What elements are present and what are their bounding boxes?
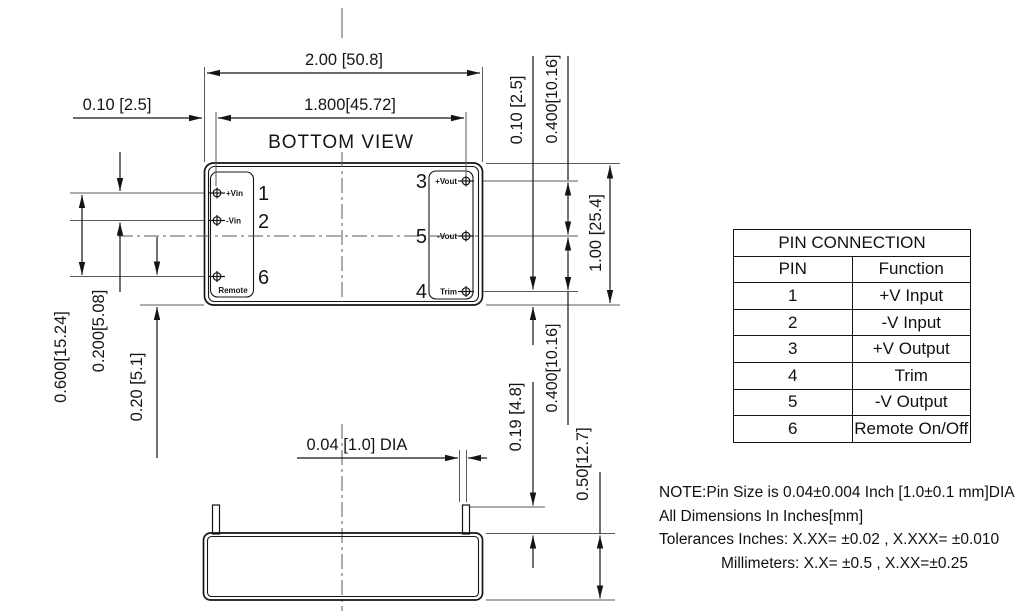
pin-cell: 4 <box>734 362 853 389</box>
pin-symbol-3 <box>458 176 474 187</box>
dim-pin-length: 0.19 [4.8] <box>507 383 525 452</box>
dim-body-width: 2.00 [50.8] <box>305 51 383 69</box>
table-row: 4 Trim <box>734 362 971 389</box>
note-line: Tolerances Inches: X.XX= ±0.02 , X.XXX= … <box>659 528 1027 552</box>
function-cell: Trim <box>852 362 971 389</box>
dim-output-pitch-lower: 0.400[10.16] <box>544 324 561 413</box>
table-title-row: PIN CONNECTION <box>734 230 971 257</box>
mechanical-drawing-page: +Vin -Vin Remote +Vout -Vout Trim 1 2 6 … <box>0 0 1028 612</box>
dim-case-height: 0.50[12.7] <box>574 427 592 500</box>
pin-label-vout-plus: +Vout <box>435 177 457 186</box>
table-header-row: PIN Function <box>734 256 971 283</box>
table-row: 6 Remote On/Off <box>734 416 971 443</box>
pin-symbol-1 <box>209 188 225 199</box>
pin-symbol-2 <box>209 215 225 226</box>
function-cell: -V Input <box>852 309 971 336</box>
pin-cell: 1 <box>734 283 853 310</box>
dim-input-pitch: 0.200[5.08] <box>90 290 108 373</box>
table-row: 3 +V Output <box>734 336 971 363</box>
dim-input-span: 0.600[15.24] <box>52 311 70 403</box>
pin-cell: 3 <box>734 336 853 363</box>
centerlines <box>118 8 480 611</box>
pin-label-vin-minus: -Vin <box>226 217 241 226</box>
pin-number-3: 3 <box>416 171 427 193</box>
pin-label-trim: Trim <box>440 288 457 297</box>
pin-number-1: 1 <box>258 183 269 205</box>
table-row: 1 +V Input <box>734 283 971 310</box>
note-line: NOTE:Pin Size is 0.04±0.004 Inch [1.0±0.… <box>659 481 1027 505</box>
table-title: PIN CONNECTION <box>734 230 971 257</box>
dim-pin-dia: 0.04 [1.0] DIA <box>307 436 408 454</box>
note-line: All Dimensions In Inches[mm] <box>659 505 1027 529</box>
side-view-package <box>204 505 483 600</box>
side-view-pin-left <box>213 505 220 534</box>
function-cell: Remote On/Off <box>852 416 971 443</box>
view-title: BOTTOM VIEW <box>268 132 414 153</box>
table-header-pin: PIN <box>734 256 853 283</box>
drawing-notes: NOTE:Pin Size is 0.04±0.004 Inch [1.0±0.… <box>659 481 1027 575</box>
pin-cell: 6 <box>734 416 853 443</box>
dim-pin-row-span: 1.800[45.72] <box>304 96 396 114</box>
dim-trim-to-edge: 0.10 [2.5] <box>508 76 526 145</box>
pin-number-4: 4 <box>416 281 427 303</box>
pin-number-6: 6 <box>258 267 269 289</box>
pin-label-vout-minus: -Vout <box>437 232 457 241</box>
note-line: Millimeters: X.X= ±0.5 , X.XX=±0.25 <box>659 552 1027 576</box>
function-cell: +V Output <box>852 336 971 363</box>
pin-label-vin-plus: +Vin <box>226 189 243 198</box>
pin-symbol-5 <box>458 231 474 242</box>
table-header-function: Function <box>852 256 971 283</box>
function-cell: -V Output <box>852 389 971 416</box>
dim-output-pitch-upper: 0.400[10.16] <box>544 55 561 144</box>
pin-cell: 5 <box>734 389 853 416</box>
pin-number-2: 2 <box>258 211 269 233</box>
pin-symbol-6 <box>209 271 225 282</box>
dim-edge-to-pin: 0.10 [2.5] <box>83 96 152 114</box>
dim-body-height: 1.00 [25.4] <box>587 194 605 272</box>
table-row: 2 -V Input <box>734 309 971 336</box>
pin-label-remote: Remote <box>218 286 248 295</box>
pin-connection-table: PIN CONNECTION PIN Function 1 +V Input 2… <box>733 229 971 443</box>
pin-cell: 2 <box>734 309 853 336</box>
table-row: 5 -V Output <box>734 389 971 416</box>
dim-remote-to-edge: 0.20 [5.1] <box>128 353 146 422</box>
function-cell: +V Input <box>852 283 971 310</box>
side-view-pin-right <box>463 505 470 534</box>
pin-number-5: 5 <box>416 226 427 248</box>
